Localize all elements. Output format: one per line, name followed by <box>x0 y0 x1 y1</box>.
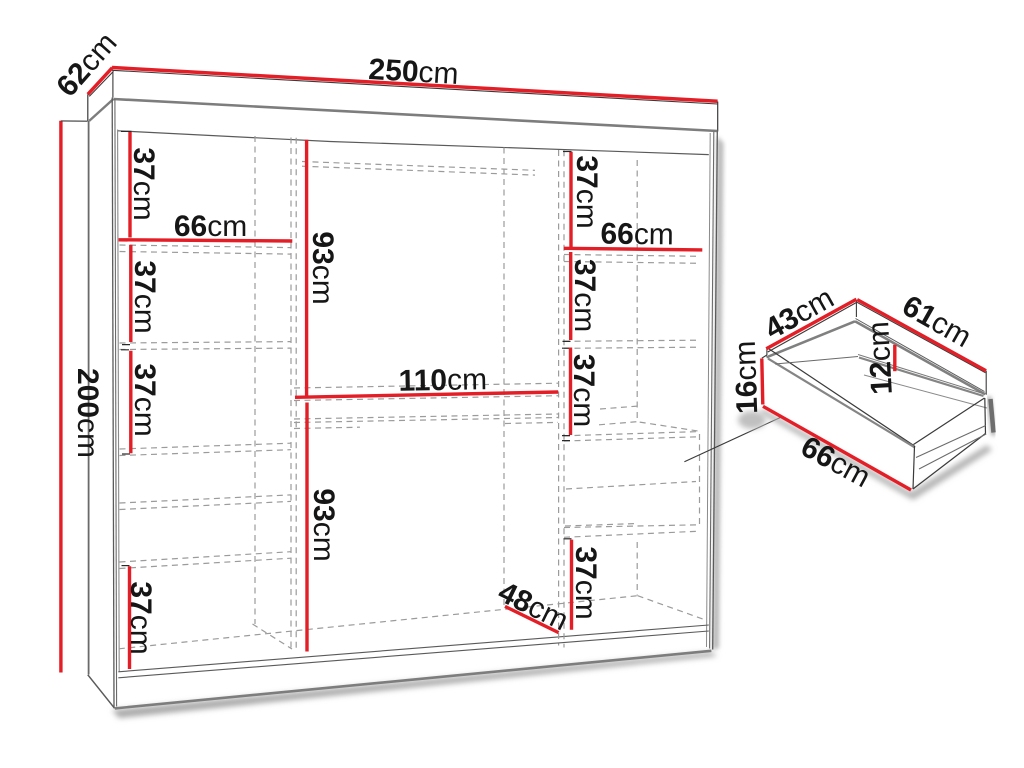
svg-text:37cm: 37cm <box>569 546 602 619</box>
svg-text:12cm: 12cm <box>862 320 899 395</box>
svg-text:16cm: 16cm <box>729 340 765 414</box>
svg-text:66cm: 66cm <box>600 218 674 252</box>
svg-text:37cm: 37cm <box>128 363 161 436</box>
svg-text:37cm: 37cm <box>128 260 161 333</box>
svg-text:110cm: 110cm <box>398 363 487 398</box>
svg-text:37cm: 37cm <box>568 259 601 332</box>
svg-text:37cm: 37cm <box>570 155 603 228</box>
svg-text:37cm: 37cm <box>127 147 160 220</box>
svg-text:93cm: 93cm <box>307 488 340 561</box>
svg-text:37cm: 37cm <box>124 581 157 654</box>
svg-text:93cm: 93cm <box>306 231 339 304</box>
svg-text:200cm: 200cm <box>71 368 104 458</box>
svg-text:250cm: 250cm <box>368 53 460 91</box>
svg-text:37cm: 37cm <box>567 354 600 427</box>
svg-text:66cm: 66cm <box>174 210 247 243</box>
